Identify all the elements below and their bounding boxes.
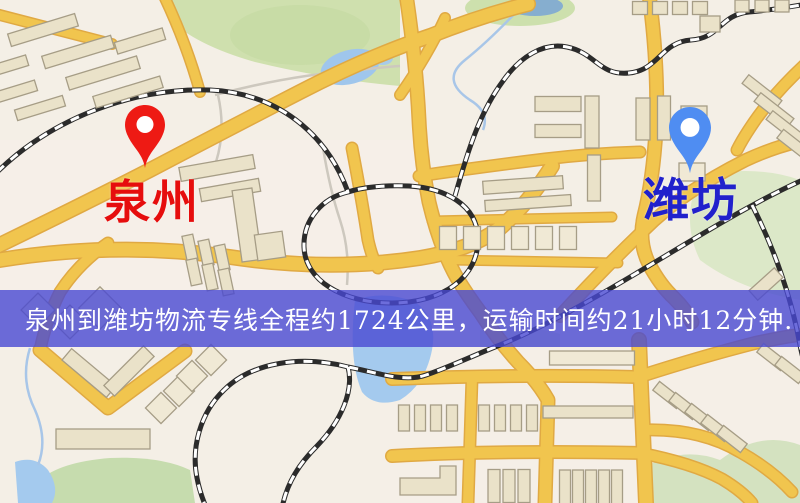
destination-pin-hole — [681, 118, 700, 137]
route-info-banner: 泉州到潍坊物流专线全程约1724公里，运输时间约21小时12分钟. — [0, 290, 800, 347]
logistics-route-map: 泉州 潍坊 泉州到潍坊物流专线全程约1724公里，运输时间约21小时12分钟. — [0, 0, 800, 503]
origin-pin-hole — [137, 116, 154, 133]
origin-city-label: 泉州 — [104, 179, 200, 225]
route-info-text: 泉州到潍坊物流专线全程约1724公里，运输时间约21小时12分钟. — [25, 301, 793, 337]
map-canvas — [0, 0, 800, 503]
destination-city-label: 潍坊 — [643, 177, 739, 223]
